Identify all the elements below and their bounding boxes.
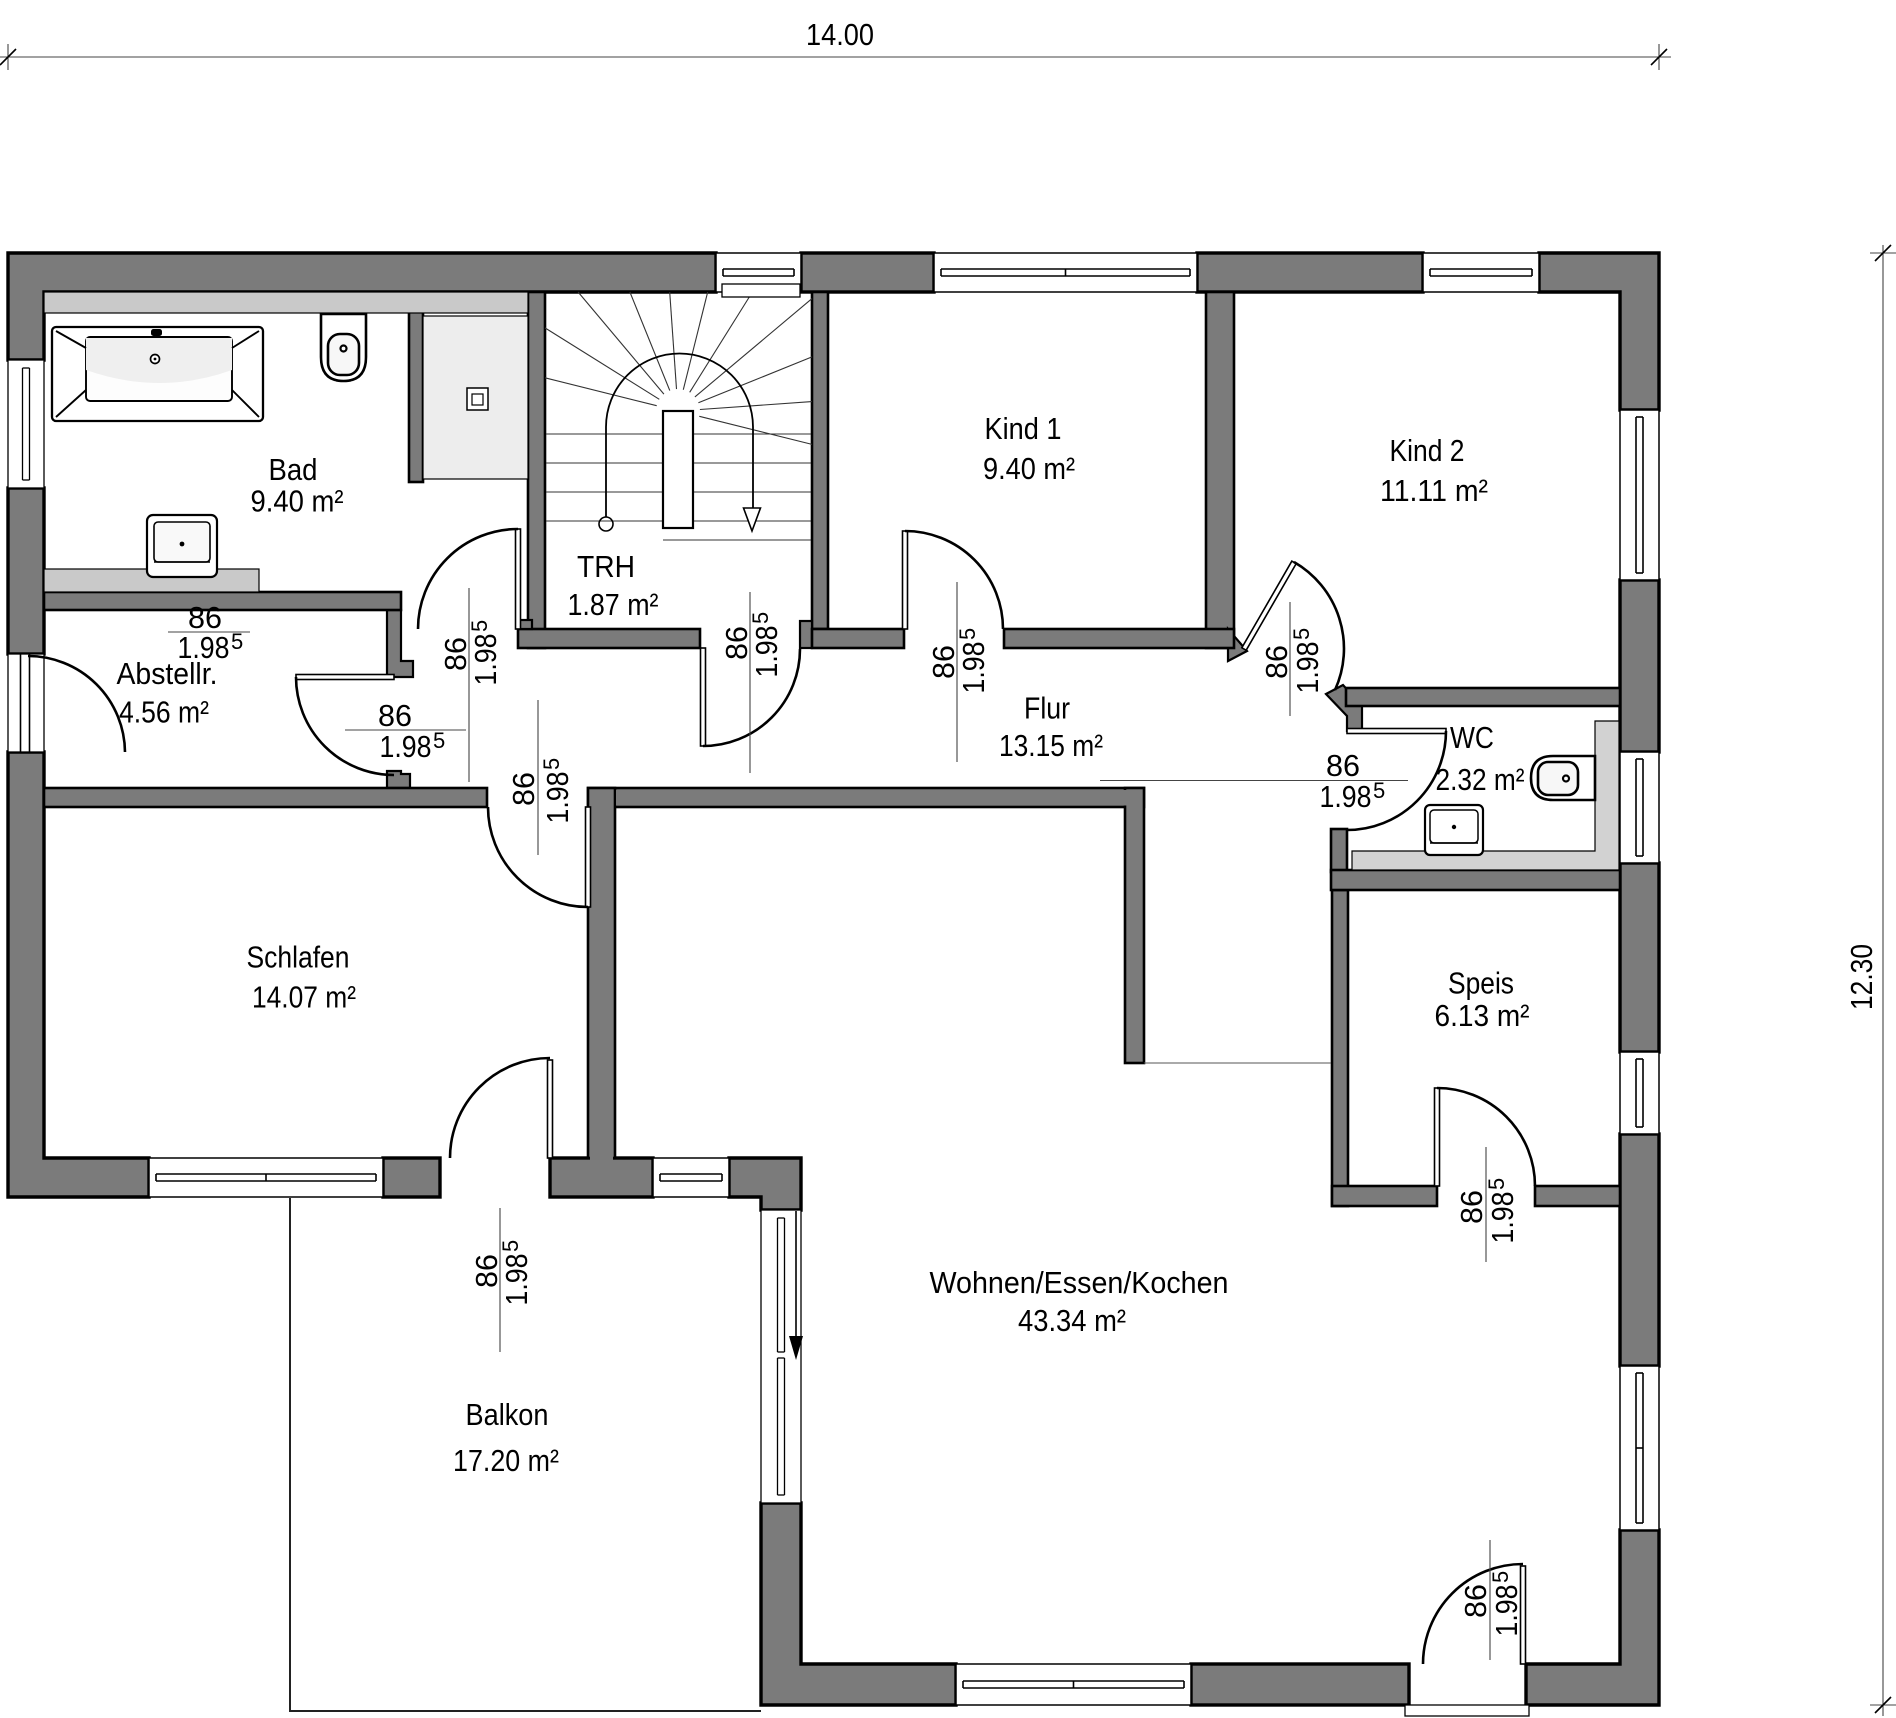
svg-text:43.34 m²: 43.34 m² xyxy=(1018,1303,1126,1338)
svg-text:Kind 1: Kind 1 xyxy=(985,411,1062,446)
svg-text:1.98: 1.98 xyxy=(956,642,991,694)
svg-text:Wohnen/Essen/Kochen: Wohnen/Essen/Kochen xyxy=(930,1265,1229,1300)
svg-text:17.20 m²: 17.20 m² xyxy=(453,1443,559,1478)
svg-text:TRH: TRH xyxy=(577,549,635,584)
svg-text:14.07 m²: 14.07 m² xyxy=(252,980,356,1015)
svg-text:Flur: Flur xyxy=(1024,691,1070,726)
svg-text:1.98: 1.98 xyxy=(1489,1585,1524,1637)
svg-text:1.98: 1.98 xyxy=(380,729,432,764)
svg-text:5: 5 xyxy=(498,1240,523,1252)
svg-text:14.00: 14.00 xyxy=(806,17,874,52)
svg-text:Schlafen: Schlafen xyxy=(247,940,350,975)
svg-text:5: 5 xyxy=(1484,1178,1509,1190)
svg-text:5: 5 xyxy=(955,628,980,640)
svg-text:86: 86 xyxy=(1326,748,1360,783)
svg-text:Kind 2: Kind 2 xyxy=(1390,433,1465,468)
svg-text:1.98: 1.98 xyxy=(1290,642,1325,694)
svg-text:5: 5 xyxy=(1488,1571,1513,1583)
svg-text:5: 5 xyxy=(1373,778,1385,803)
svg-text:5: 5 xyxy=(467,620,492,632)
svg-text:1.98: 1.98 xyxy=(540,772,575,824)
svg-text:1.87 m²: 1.87 m² xyxy=(568,587,659,622)
svg-text:1.98: 1.98 xyxy=(1485,1192,1520,1244)
svg-text:86: 86 xyxy=(506,772,541,806)
svg-text:1.98: 1.98 xyxy=(468,634,503,686)
svg-text:6.13 m²: 6.13 m² xyxy=(1435,998,1530,1033)
svg-text:1.98: 1.98 xyxy=(749,626,784,678)
svg-text:Speis: Speis xyxy=(1448,966,1514,1001)
svg-text:5: 5 xyxy=(433,728,445,753)
svg-text:4.56 m²: 4.56 m² xyxy=(119,695,209,730)
svg-text:Abstellr.: Abstellr. xyxy=(117,656,218,691)
svg-text:5: 5 xyxy=(231,629,243,654)
svg-text:WC: WC xyxy=(1450,720,1494,755)
svg-text:5: 5 xyxy=(1289,628,1314,640)
svg-text:9.40 m²: 9.40 m² xyxy=(251,484,344,519)
svg-text:2.32 m²: 2.32 m² xyxy=(1436,762,1525,797)
svg-text:Balkon: Balkon xyxy=(466,1397,549,1432)
svg-text:1.98: 1.98 xyxy=(499,1254,534,1306)
svg-text:86: 86 xyxy=(1458,1584,1493,1618)
svg-text:1.98: 1.98 xyxy=(1320,779,1372,814)
svg-text:5: 5 xyxy=(748,612,773,624)
svg-text:13.15 m²: 13.15 m² xyxy=(999,728,1103,763)
svg-text:9.40 m²: 9.40 m² xyxy=(983,451,1075,486)
svg-text:5: 5 xyxy=(539,758,564,770)
svg-text:86: 86 xyxy=(1259,645,1294,679)
svg-text:Bad: Bad xyxy=(269,452,318,487)
svg-text:12.30: 12.30 xyxy=(1844,944,1879,1010)
svg-text:86: 86 xyxy=(1454,1190,1489,1224)
svg-text:11.11 m²: 11.11 m² xyxy=(1380,473,1488,508)
svg-text:86: 86 xyxy=(378,698,412,733)
